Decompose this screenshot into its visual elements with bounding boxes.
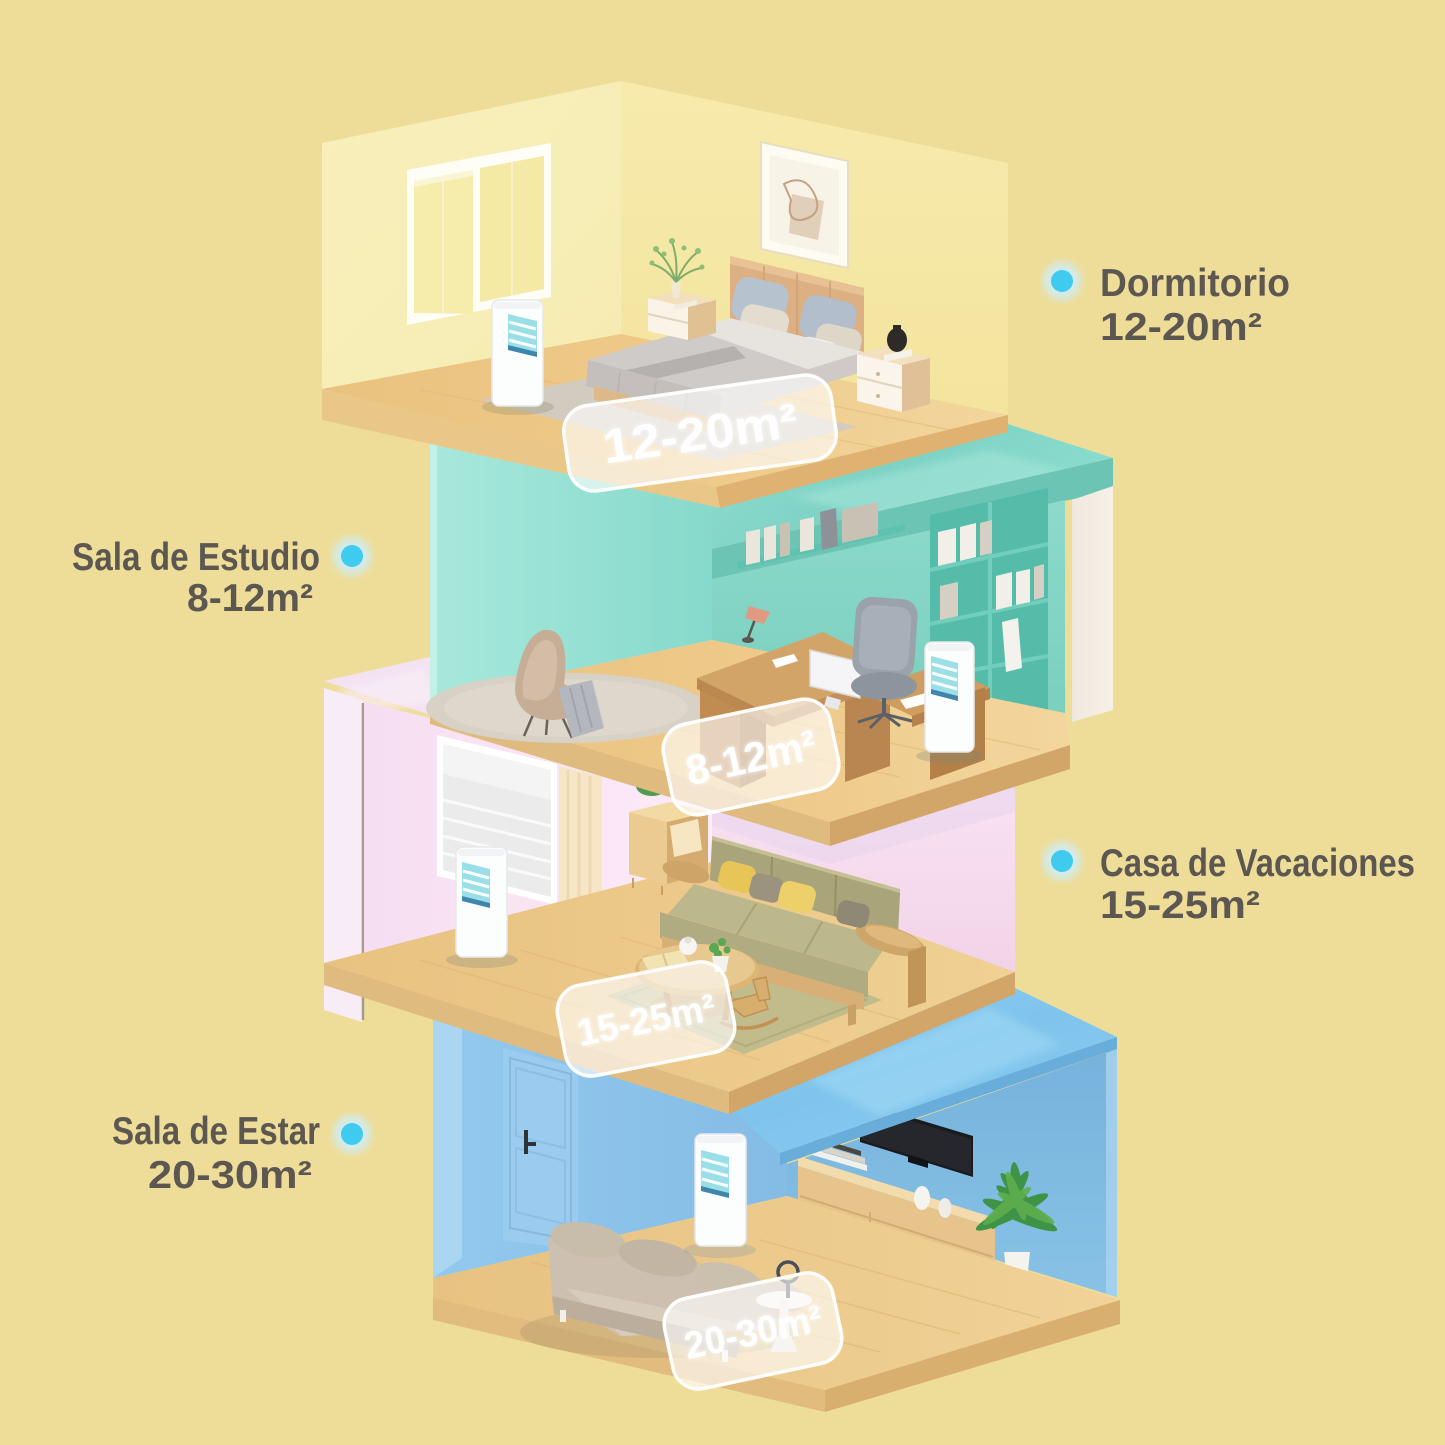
svg-text:15-25m²: 15-25m² [1100, 884, 1260, 927]
svg-text:8-12m²: 8-12m² [187, 577, 313, 620]
svg-text:Sala de Estar: Sala de Estar [112, 1110, 320, 1153]
svg-text:Dormitorio: Dormitorio [1100, 262, 1290, 305]
svg-text:12-20m²: 12-20m² [1100, 306, 1262, 349]
svg-text:20-30m²: 20-30m² [148, 1154, 312, 1197]
svg-text:Casa de Vacaciones: Casa de Vacaciones [1100, 842, 1415, 885]
svg-text:Sala de Estudio: Sala de Estudio [72, 536, 320, 579]
